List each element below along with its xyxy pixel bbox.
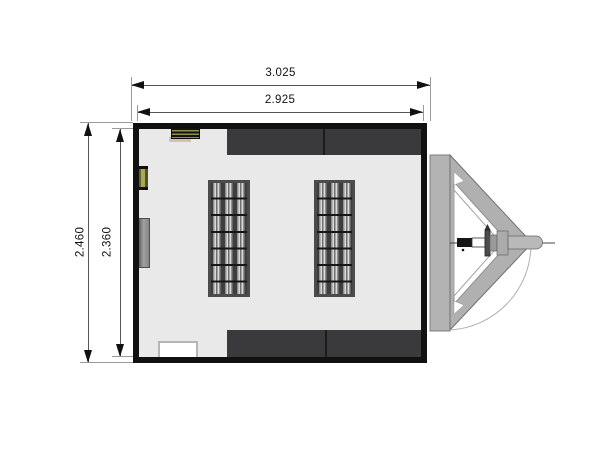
louvre-panel-left [208,180,250,297]
left-wall-fixture-small [139,166,148,190]
shaft-white-segment [472,238,485,247]
extension-line [80,122,133,123]
bolt-dot [462,249,465,252]
door-opening [158,341,198,357]
shaft-black-segment [457,238,472,247]
arrow-right-icon [417,81,430,89]
dimension-label-top-inner: 2.925 [137,94,423,106]
drawbar-hitch-assembly [427,148,562,343]
extension-line [137,105,138,121]
coupler-step [490,235,497,251]
extension-line [80,362,133,363]
dimension-label-left-inner: 2.360 [102,215,114,270]
top-wall-fixture [171,127,200,139]
dimension-line-top-inner [137,112,423,113]
louvre-panel-right [314,180,355,297]
trailer-floorplan-drawing: 3.025 2.925 2.460 2.360 [0,0,610,450]
roof-panel-bottom [227,330,421,357]
dimension-line-left-outer [88,123,89,363]
tow-hitch-tongue [508,236,543,249]
extension-line [423,105,424,121]
arrow-left-icon [137,108,150,116]
extension-line [131,77,132,121]
arrow-left-icon [131,81,144,89]
roof-panel-top [227,129,421,155]
arrow-up-icon [84,123,92,136]
panel-seam [325,330,327,357]
coupler-body [497,231,508,255]
dimension-line-top-outer [131,85,430,86]
drawbar-mount-plate [430,155,450,331]
left-wall-fixture-large [139,218,150,268]
dimension-line-left-inner [120,129,121,357]
extension-line [430,77,431,121]
panel-seam [323,129,325,155]
dimension-label-left-outer: 2.460 [75,215,87,270]
trailer-body [133,123,427,363]
arrow-right-icon [410,108,423,116]
dimension-label-top-outer: 3.025 [131,67,430,79]
arrow-up-icon [116,129,124,142]
jockey-clamp [485,230,490,256]
